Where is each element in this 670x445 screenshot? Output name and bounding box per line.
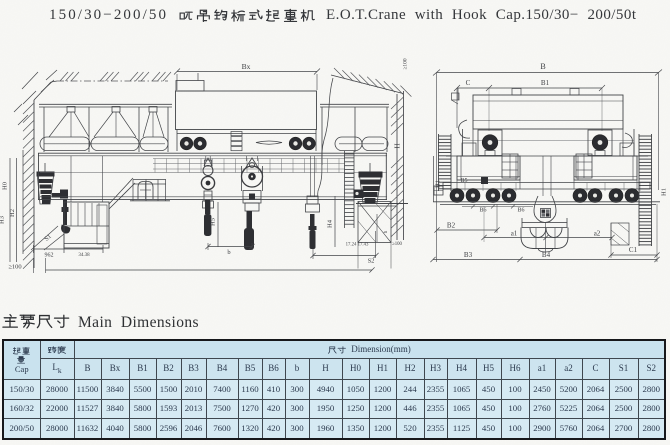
svg-text:H1: H1	[435, 180, 442, 188]
svg-text:H: H	[394, 143, 402, 148]
svg-text:962: 962	[45, 253, 54, 259]
svg-text:B2: B2	[447, 222, 456, 230]
svg-text:Bx: Bx	[242, 62, 251, 71]
svg-text:B6: B6	[517, 208, 524, 214]
svg-text:34.38: 34.38	[78, 253, 90, 258]
svg-text:H0: H0	[2, 182, 9, 190]
svg-text:B6: B6	[479, 208, 486, 214]
svg-text:C: C	[466, 79, 471, 87]
svg-text:17.24 17.43: 17.24 17.43	[346, 243, 369, 248]
svg-text:B1: B1	[541, 79, 550, 87]
svg-text:a1: a1	[511, 230, 518, 238]
svg-text:≥100: ≥100	[392, 242, 402, 247]
svg-text:B5: B5	[460, 178, 467, 184]
svg-text:≥100: ≥100	[8, 264, 21, 271]
svg-text:B: B	[540, 62, 545, 71]
svg-text:H3: H3	[0, 216, 6, 224]
svg-text:b: b	[227, 249, 230, 256]
svg-text:H5: H5	[210, 218, 217, 226]
svg-text:H1: H1	[661, 188, 668, 196]
svg-text:B3: B3	[464, 251, 473, 259]
svg-text:h: h	[384, 230, 389, 233]
svg-text:S1: S1	[43, 233, 53, 243]
svg-text:B4: B4	[542, 251, 551, 259]
svg-text:≥100: ≥100	[403, 58, 409, 70]
svg-text:a2: a2	[594, 230, 601, 238]
svg-text:H4: H4	[327, 219, 334, 228]
svg-text:H2: H2	[9, 209, 16, 217]
svg-text:C1: C1	[629, 246, 638, 254]
svg-text:S2: S2	[368, 258, 375, 265]
